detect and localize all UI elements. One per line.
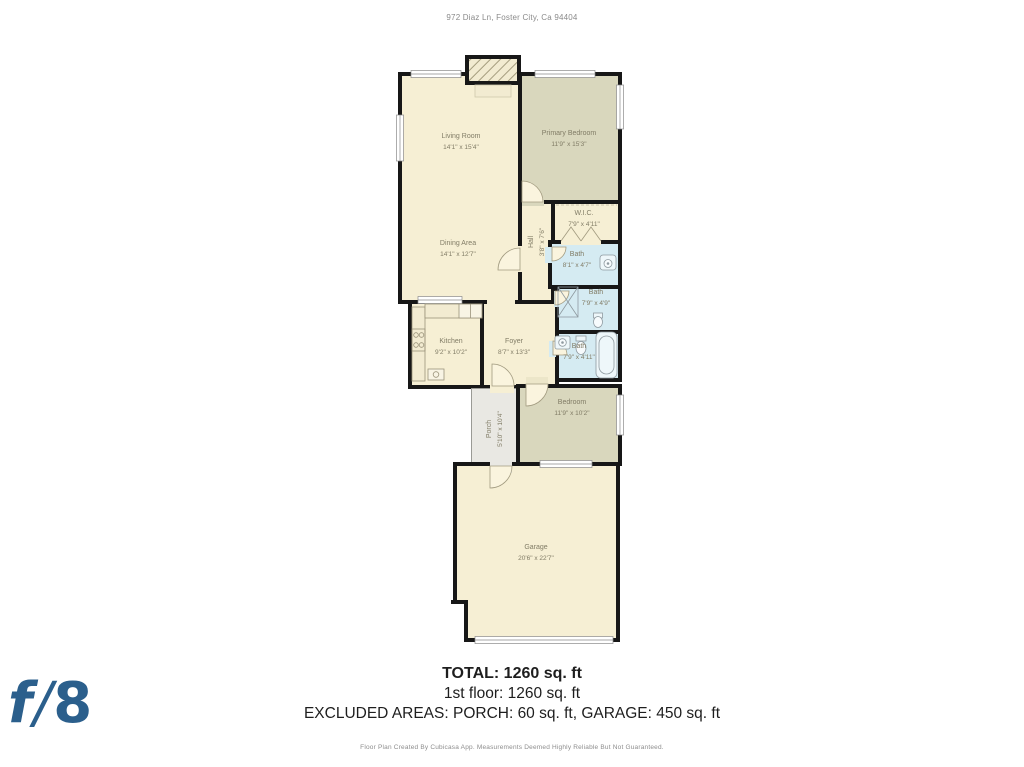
- disclaimer-text: Floor Plan Created By Cubicasa App. Meas…: [0, 744, 1024, 751]
- room-living-room: [398, 72, 522, 304]
- room-label-wic: W.I.C.7'9" x 4'11": [568, 209, 600, 229]
- summary-total: TOTAL: 1260 sq. ft: [0, 664, 1024, 684]
- room-label-dining-area: Dining Area14'1" x 12'7": [440, 239, 476, 259]
- room-label-garage: Garage20'6" x 22'7": [518, 543, 554, 563]
- summary-excluded-areas: EXCLUDED AREAS: PORCH: 60 sq. ft, GARAGE…: [0, 704, 1024, 724]
- logo-eight: 8: [53, 671, 92, 736]
- room-label-bath-lower: Bath7'9" x 4'11": [563, 342, 595, 362]
- room-label-bath-primary: Bath8'1" x 4'7": [563, 250, 591, 270]
- floor-plan: Living Room14'1" x 15'4"Dining Area14'1"…: [395, 55, 625, 645]
- room-label-kitchen: Kitchen9'2" x 10'2": [435, 337, 467, 357]
- room-label-porch: Porch5'10" x 10'4": [485, 411, 505, 447]
- room-label-hall: Hall3'8" x 7'6": [527, 228, 547, 256]
- room-label-living-room: Living Room14'1" x 15'4": [442, 132, 481, 152]
- area-summary: TOTAL: 1260 sq. ft 1st floor: 1260 sq. f…: [0, 664, 1024, 724]
- garage-notch: [451, 600, 468, 642]
- room-label-bath-middle: Bath7'9" x 4'9": [582, 288, 610, 308]
- logo-slash: /: [32, 671, 53, 736]
- f8-logo: f/8: [8, 676, 92, 732]
- room-label-primary-bedroom: Primary Bedroom11'9" x 15'3": [542, 129, 596, 149]
- room-bedroom: [516, 384, 622, 466]
- floor-plan-page: 972 Diaz Ln, Foster City, Ca 94404: [0, 0, 1024, 767]
- summary-first-floor: 1st floor: 1260 sq. ft: [0, 684, 1024, 704]
- logo-f: f: [8, 671, 32, 736]
- room-label-bedroom: Bedroom11'9" x 10'2": [554, 398, 589, 418]
- room-label-foyer: Foyer8'7" x 13'3": [498, 337, 530, 357]
- property-address: 972 Diaz Ln, Foster City, Ca 94404: [0, 13, 1024, 22]
